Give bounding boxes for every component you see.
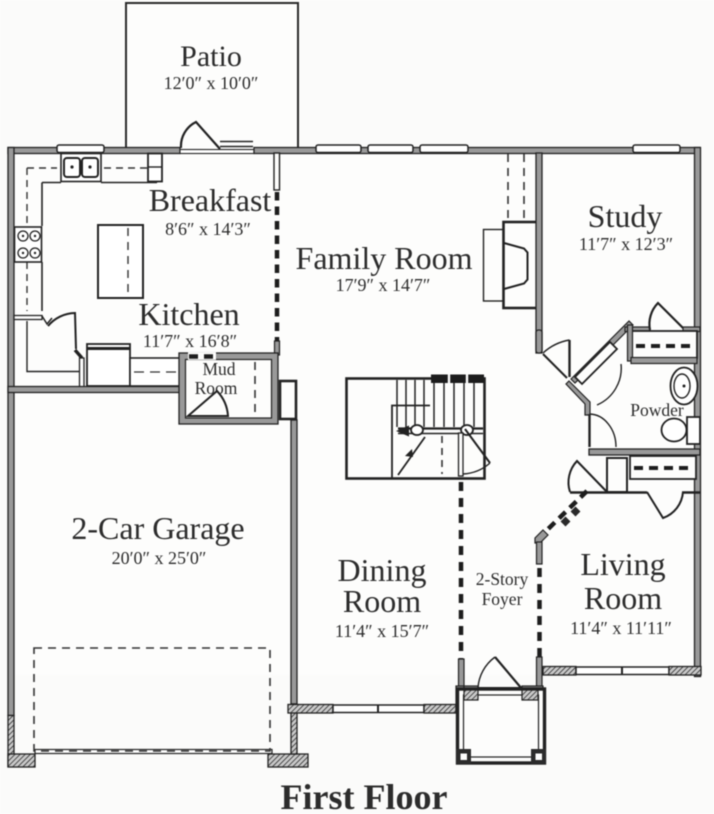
svg-text:2-Story: 2-Story bbox=[476, 569, 529, 589]
svg-text:Study: Study bbox=[588, 198, 663, 234]
svg-text:11′7″ x 12′3″: 11′7″ x 12′3″ bbox=[579, 234, 673, 254]
svg-text:12′0″ x 10′0″: 12′0″ x 10′0″ bbox=[164, 73, 259, 93]
svg-text:Patio: Patio bbox=[180, 40, 242, 73]
svg-text:Foyer: Foyer bbox=[482, 589, 523, 609]
svg-text:20′0″ x 25′0″: 20′0″ x 25′0″ bbox=[112, 548, 207, 568]
svg-text:Kitchen: Kitchen bbox=[138, 296, 239, 332]
svg-text:2-Car Garage: 2-Car Garage bbox=[71, 510, 244, 546]
svg-text:17′9″ x 14′7″: 17′9″ x 14′7″ bbox=[336, 275, 431, 295]
svg-text:11′4″ x 15′7″: 11′4″ x 15′7″ bbox=[335, 621, 429, 641]
svg-text:Family Room: Family Room bbox=[296, 240, 473, 276]
svg-text:Breakfast: Breakfast bbox=[149, 182, 272, 218]
svg-text:Powder: Powder bbox=[630, 400, 684, 420]
svg-text:Living: Living bbox=[580, 546, 665, 582]
svg-text:Room: Room bbox=[584, 580, 662, 616]
svg-text:11′7″ x 16′8″: 11′7″ x 16′8″ bbox=[143, 331, 237, 351]
svg-text:8′6″ x 14′3″: 8′6″ x 14′3″ bbox=[165, 219, 251, 239]
svg-text:11′4″ x 11′11″: 11′4″ x 11′11″ bbox=[570, 618, 672, 638]
svg-text:Room: Room bbox=[343, 583, 421, 619]
svg-text:First Floor: First Floor bbox=[281, 777, 448, 814]
svg-text:Mud: Mud bbox=[202, 359, 235, 379]
